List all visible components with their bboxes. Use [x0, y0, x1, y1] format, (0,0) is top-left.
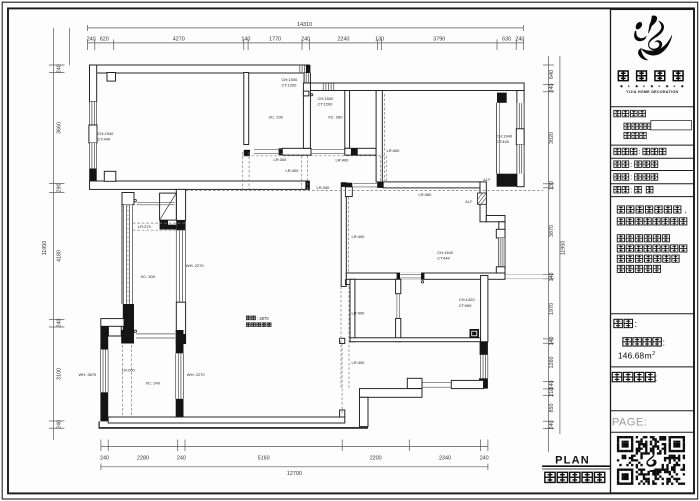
svg-text:A1.F: A1.F — [465, 200, 472, 204]
svg-text:140: 140 — [549, 273, 555, 282]
svg-text:CH:1940: CH:1940 — [437, 250, 454, 255]
svg-text:LR:400: LR:400 — [387, 148, 401, 153]
svg-text:XC: 230: XC: 230 — [269, 115, 284, 120]
svg-text:CT:1200: CT:1200 — [318, 102, 334, 107]
svg-text:3790: 3790 — [433, 37, 445, 43]
svg-text::: : — [630, 173, 632, 182]
svg-text:130: 130 — [549, 181, 555, 190]
svg-text:240: 240 — [515, 37, 524, 43]
svg-text:CT:1200: CT:1200 — [282, 82, 298, 87]
svg-text:640: 640 — [549, 70, 555, 79]
svg-text:140: 140 — [241, 37, 250, 43]
svg-text:1770: 1770 — [269, 37, 281, 43]
svg-text:XC: 300: XC: 300 — [141, 274, 156, 279]
svg-text:2280: 2280 — [137, 456, 149, 462]
svg-text:210: 210 — [549, 388, 555, 397]
svg-text:2340: 2340 — [439, 456, 451, 462]
svg-text:12700: 12700 — [287, 471, 302, 477]
svg-text:CT:440: CT:440 — [98, 137, 111, 142]
svg-text::: : — [635, 319, 638, 329]
svg-text:LR:360: LR:360 — [419, 192, 433, 197]
svg-text:240: 240 — [549, 421, 555, 430]
svg-text:,: , — [684, 205, 686, 214]
svg-text:3100: 3100 — [57, 368, 63, 380]
svg-text:: 2870: : 2870 — [257, 316, 269, 321]
svg-text:14310: 14310 — [297, 22, 312, 28]
svg-text:CH:1500: CH:1500 — [282, 77, 299, 82]
svg-text:290: 290 — [57, 184, 63, 193]
svg-text:146.68: 146.68 — [618, 351, 645, 361]
svg-text:11950: 11950 — [42, 241, 48, 256]
svg-text:LR:400: LR:400 — [336, 157, 350, 162]
svg-text:LR:400: LR:400 — [352, 311, 366, 316]
svg-text::: : — [630, 160, 632, 169]
svg-text:1970: 1970 — [549, 303, 555, 315]
svg-text:CH:1940: CH:1940 — [496, 133, 513, 138]
svg-text:A1.F: A1.F — [483, 178, 490, 182]
svg-text::: : — [644, 109, 646, 118]
svg-text:240: 240 — [57, 64, 63, 73]
svg-text:240: 240 — [87, 37, 96, 43]
svg-text:130: 130 — [375, 37, 384, 43]
svg-text::: : — [655, 373, 658, 384]
svg-text:CH:1420: CH:1420 — [459, 297, 476, 302]
svg-text:2240: 2240 — [338, 37, 350, 43]
svg-text:LR:400: LR:400 — [352, 234, 366, 239]
svg-text:LR:270: LR:270 — [138, 224, 152, 229]
svg-text:2: 2 — [652, 351, 655, 357]
svg-text:240: 240 — [480, 456, 489, 462]
svg-text:140: 140 — [549, 337, 555, 346]
svg-text:CT:990: CT:990 — [459, 303, 472, 308]
svg-text:850: 850 — [549, 404, 555, 413]
svg-text:WH: 2270: WH: 2270 — [187, 372, 206, 377]
svg-text:m: m — [645, 351, 652, 361]
svg-text:240: 240 — [177, 456, 186, 462]
svg-text:PLAN: PLAN — [555, 454, 590, 466]
svg-text:240: 240 — [301, 37, 310, 43]
svg-text:LR:300: LR:300 — [274, 157, 288, 162]
svg-text:LR:400: LR:400 — [286, 168, 300, 173]
svg-text:CT:440: CT:440 — [496, 139, 509, 144]
svg-text:LR:200: LR:200 — [122, 367, 136, 372]
svg-text:11950: 11950 — [561, 241, 567, 256]
svg-text:3020: 3020 — [549, 132, 555, 144]
svg-text:4270: 4270 — [173, 37, 185, 43]
svg-text:630: 630 — [502, 37, 511, 43]
svg-text:3870: 3870 — [549, 225, 555, 237]
svg-text:CH:1500: CH:1500 — [318, 96, 335, 101]
svg-text:XC: 280: XC: 280 — [328, 115, 343, 120]
svg-text:YIJIA HOME DECORATION: YIJIA HOME DECORATION — [626, 90, 678, 94]
svg-text:240: 240 — [57, 420, 63, 429]
svg-text:WH: 2270: WH: 2270 — [186, 263, 205, 268]
svg-text:CT:440: CT:440 — [437, 256, 450, 261]
svg-text:2200: 2200 — [370, 456, 382, 462]
svg-text::: : — [663, 337, 666, 347]
svg-text:240: 240 — [549, 84, 555, 93]
svg-text:PAGE:: PAGE: — [612, 416, 647, 428]
svg-text:620: 620 — [100, 37, 109, 43]
svg-text:1260: 1260 — [549, 357, 555, 369]
svg-text:240: 240 — [100, 456, 109, 462]
svg-text::: : — [630, 185, 632, 194]
svg-text::: : — [639, 147, 641, 156]
svg-text:CH:1940: CH:1940 — [98, 131, 115, 136]
svg-text:WH: 3670: WH: 3670 — [79, 372, 98, 377]
svg-text:4180: 4180 — [57, 250, 63, 262]
svg-text:LR:340: LR:340 — [317, 185, 331, 190]
svg-text:240: 240 — [57, 319, 63, 328]
svg-text:3660: 3660 — [57, 122, 63, 134]
svg-text:XC: 240: XC: 240 — [146, 380, 161, 385]
svg-text:LR:400: LR:400 — [352, 360, 366, 365]
svg-text:5160: 5160 — [258, 456, 270, 462]
